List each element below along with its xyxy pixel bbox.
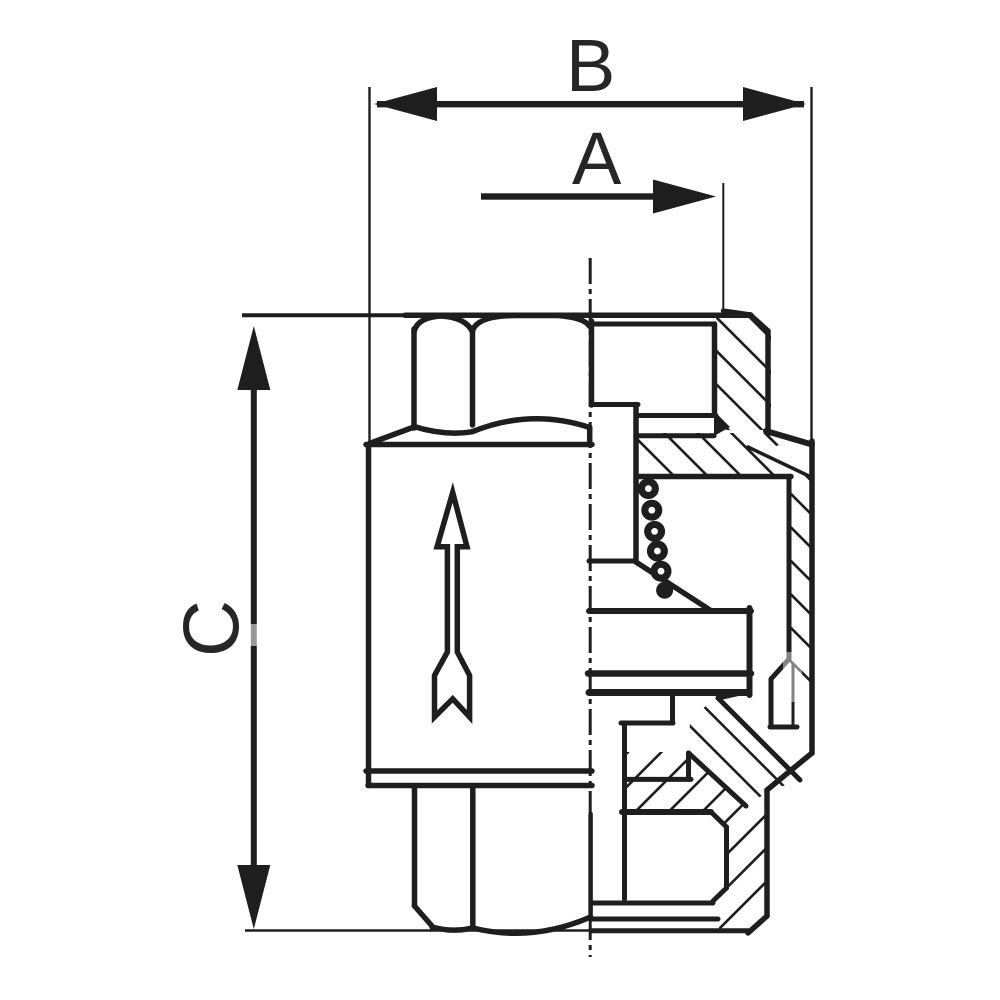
svg-text:B: B [566, 24, 615, 107]
svg-text:A: A [572, 117, 622, 200]
svg-text:C: C [166, 600, 255, 657]
